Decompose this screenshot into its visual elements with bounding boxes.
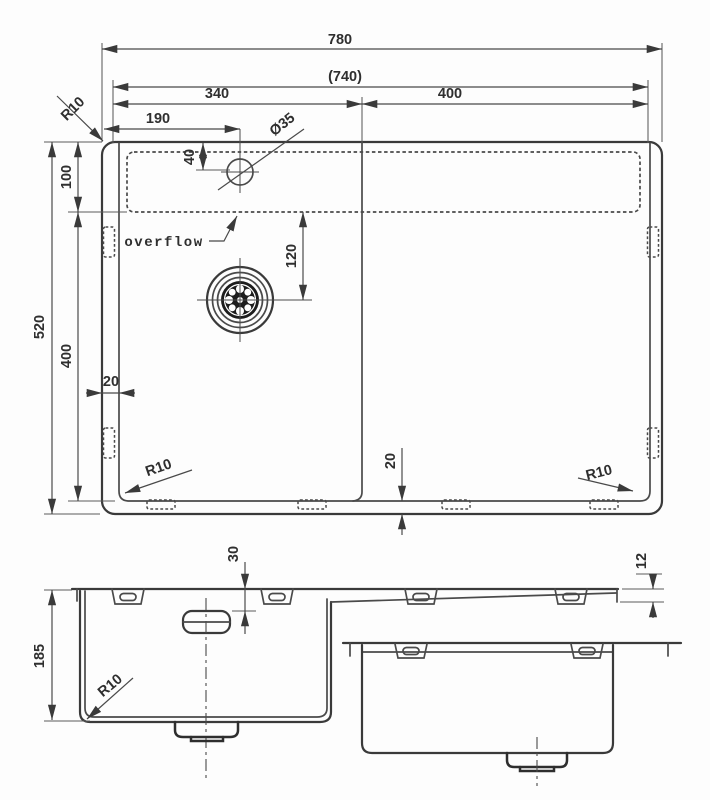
dim-radius-bottom-left: R10 <box>144 456 174 480</box>
dim-inner-width: (740) <box>328 69 362 85</box>
bowl-divider <box>353 143 362 501</box>
hidden-rim-channel <box>127 152 640 212</box>
drawing-svg: 780 (740) 340 400 190 Ø35 R10 40 100 520… <box>0 0 710 800</box>
right-bowl-end-view <box>343 643 681 786</box>
dim-boss-offset: 30 <box>226 546 242 562</box>
dim-section-depth: 185 <box>32 644 48 668</box>
section-view-dimensions: 185 R10 30 12 <box>32 546 664 721</box>
dim-tap-hole-y: 40 <box>182 149 198 165</box>
dim-right-bowl-width: 400 <box>438 86 462 102</box>
dim-tap-hole-x: 190 <box>146 111 170 127</box>
top-view-dimensions: 780 (740) 340 400 190 Ø35 R10 40 100 520… <box>32 32 662 535</box>
dim-rim-thickness: 12 <box>634 553 650 569</box>
dim-overall-depth: 520 <box>32 315 48 339</box>
right-bowl-section <box>362 645 613 753</box>
dim-radius-bottom-right: R10 <box>584 462 614 484</box>
dim-section-radius: R10 <box>95 671 126 700</box>
clip-left-upper <box>104 227 115 257</box>
sink-outer-body <box>102 142 662 514</box>
clip-left-lower <box>104 428 115 458</box>
dim-wall-gap: 20 <box>103 374 119 390</box>
dim-drain-offset: 120 <box>284 244 300 268</box>
sink-inner-walls <box>119 143 650 501</box>
top-view <box>102 129 662 514</box>
dim-bowl-depth: 400 <box>59 344 75 368</box>
dim-radius-top-left: R10 <box>58 94 88 124</box>
dim-tap-hole-diameter: Ø35 <box>267 110 298 139</box>
overflow-label: overflow <box>124 235 203 251</box>
dim-rim-depth: 100 <box>59 165 75 189</box>
dim-left-bowl-width: 340 <box>205 86 229 102</box>
end-view-clips <box>395 644 603 658</box>
dim-overall-width: 780 <box>328 32 352 48</box>
sink-technical-drawing: 780 (740) 340 400 190 Ø35 R10 40 100 520… <box>0 0 710 800</box>
drain <box>197 258 312 342</box>
section-view <box>72 589 618 778</box>
dim-base-gap: 20 <box>383 453 399 469</box>
